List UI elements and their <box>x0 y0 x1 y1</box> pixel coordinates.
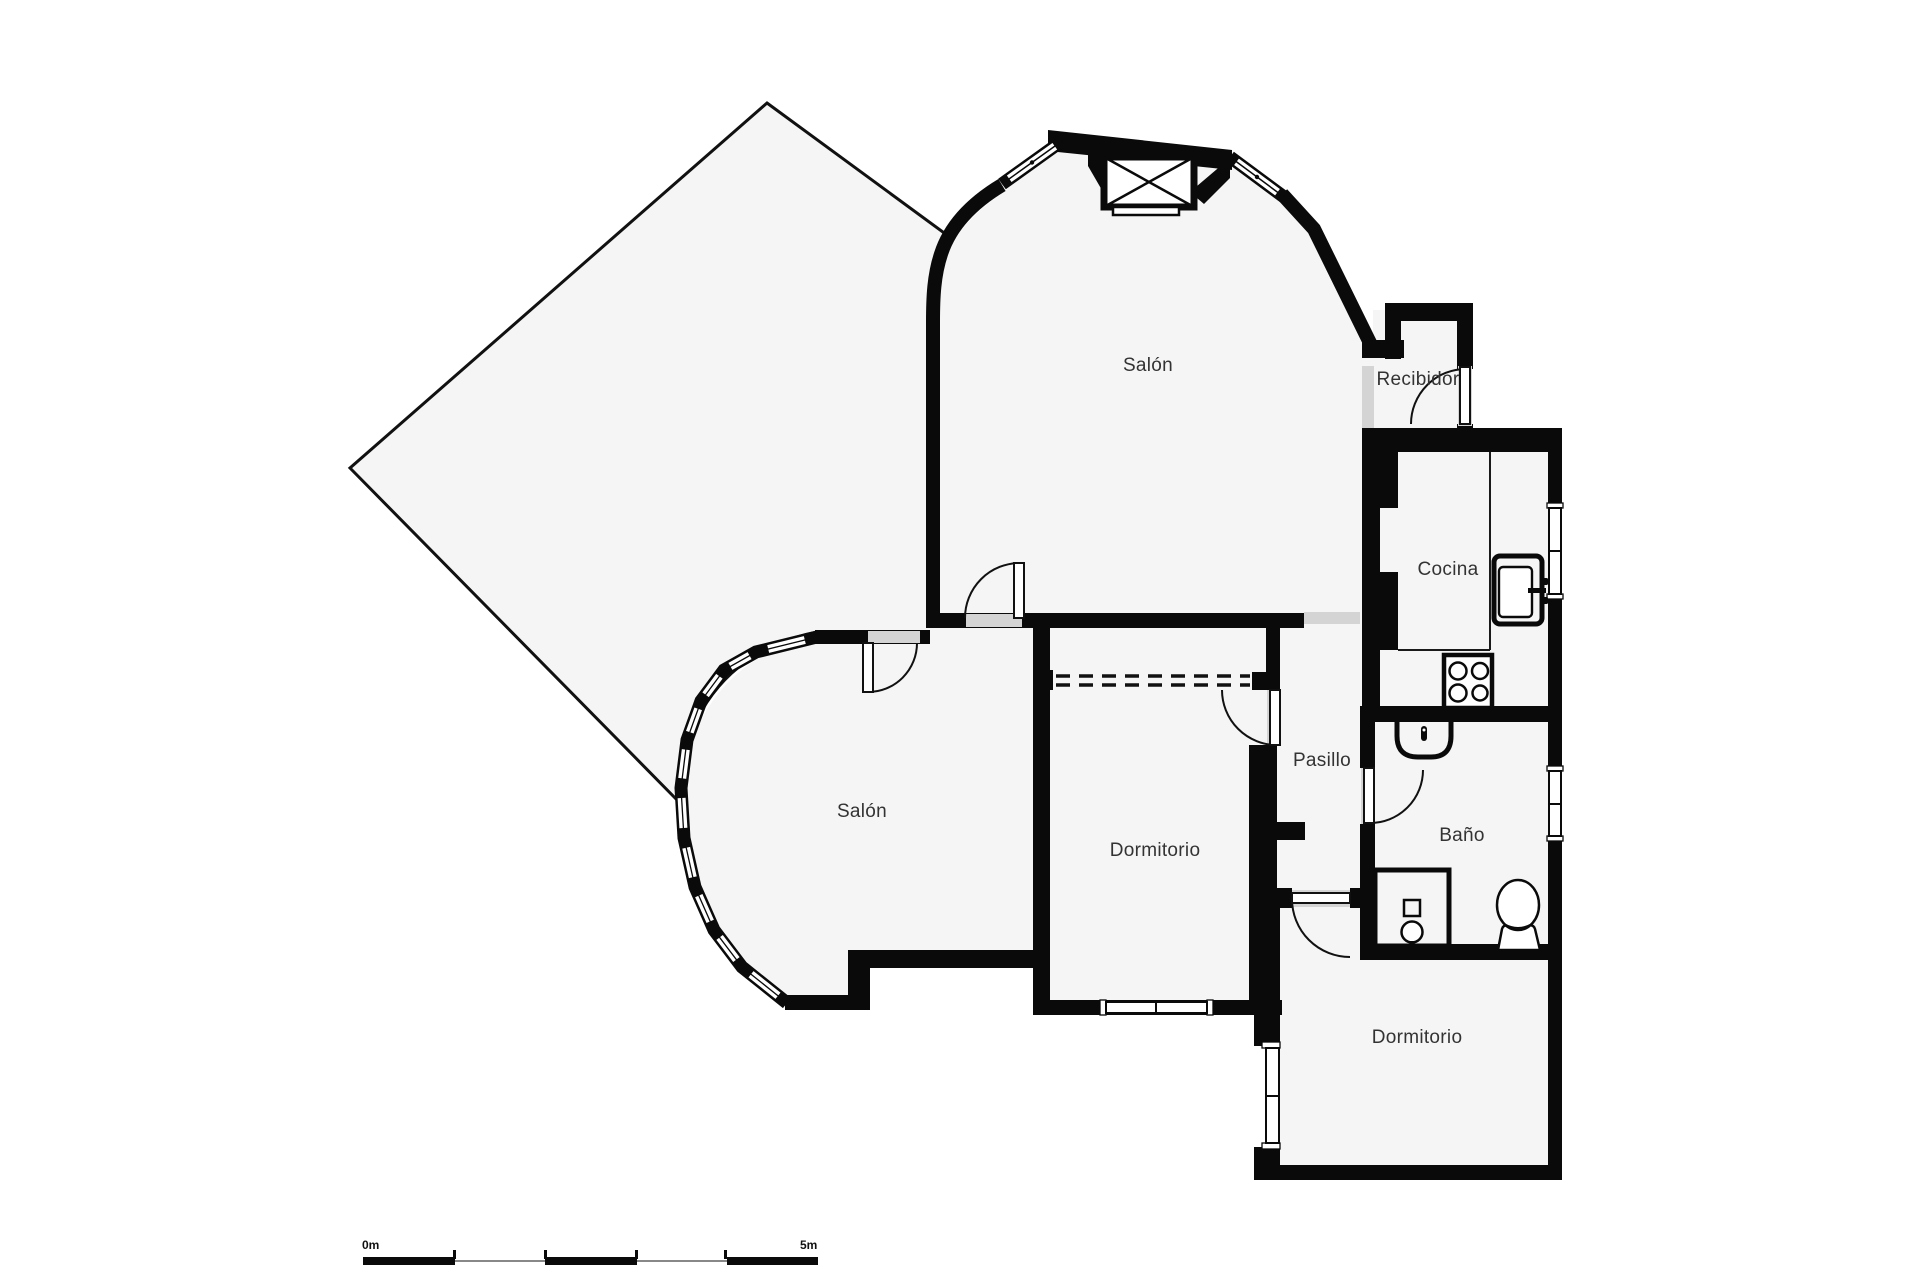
room-label-dormitorio-center: Dormitorio <box>1110 840 1201 862</box>
fireplace-icon <box>1104 157 1194 215</box>
shower-icon <box>1375 870 1449 954</box>
window <box>1547 503 1563 599</box>
floorplan-canvas <box>0 0 1920 1280</box>
room-label-salon-left: Salón <box>837 801 887 823</box>
window <box>1547 766 1563 841</box>
room-label-pasillo: Pasillo <box>1293 750 1351 772</box>
scale-end-label: 5m <box>800 1238 817 1252</box>
room-label-cocina: Cocina <box>1418 559 1479 581</box>
room-label-bano: Baño <box>1439 825 1485 847</box>
scale-start-label: 0m <box>362 1238 379 1252</box>
stove-icon <box>1444 655 1492 708</box>
floorplan-page: Salón Salón Recibidor Cocina Pasillo Bañ… <box>0 0 1920 1280</box>
kitchen-sink-icon <box>1494 556 1548 624</box>
room-label-dormitorio-bottom: Dormitorio <box>1372 1027 1463 1049</box>
toilet-icon <box>1497 880 1540 950</box>
room-label-salon-top: Salón <box>1123 355 1173 377</box>
washbasin-icon <box>1397 722 1451 757</box>
window <box>1262 1042 1280 1149</box>
window <box>1100 1000 1213 1015</box>
scale-bar <box>363 1250 818 1265</box>
room-label-recibidor: Recibidor <box>1377 369 1460 391</box>
